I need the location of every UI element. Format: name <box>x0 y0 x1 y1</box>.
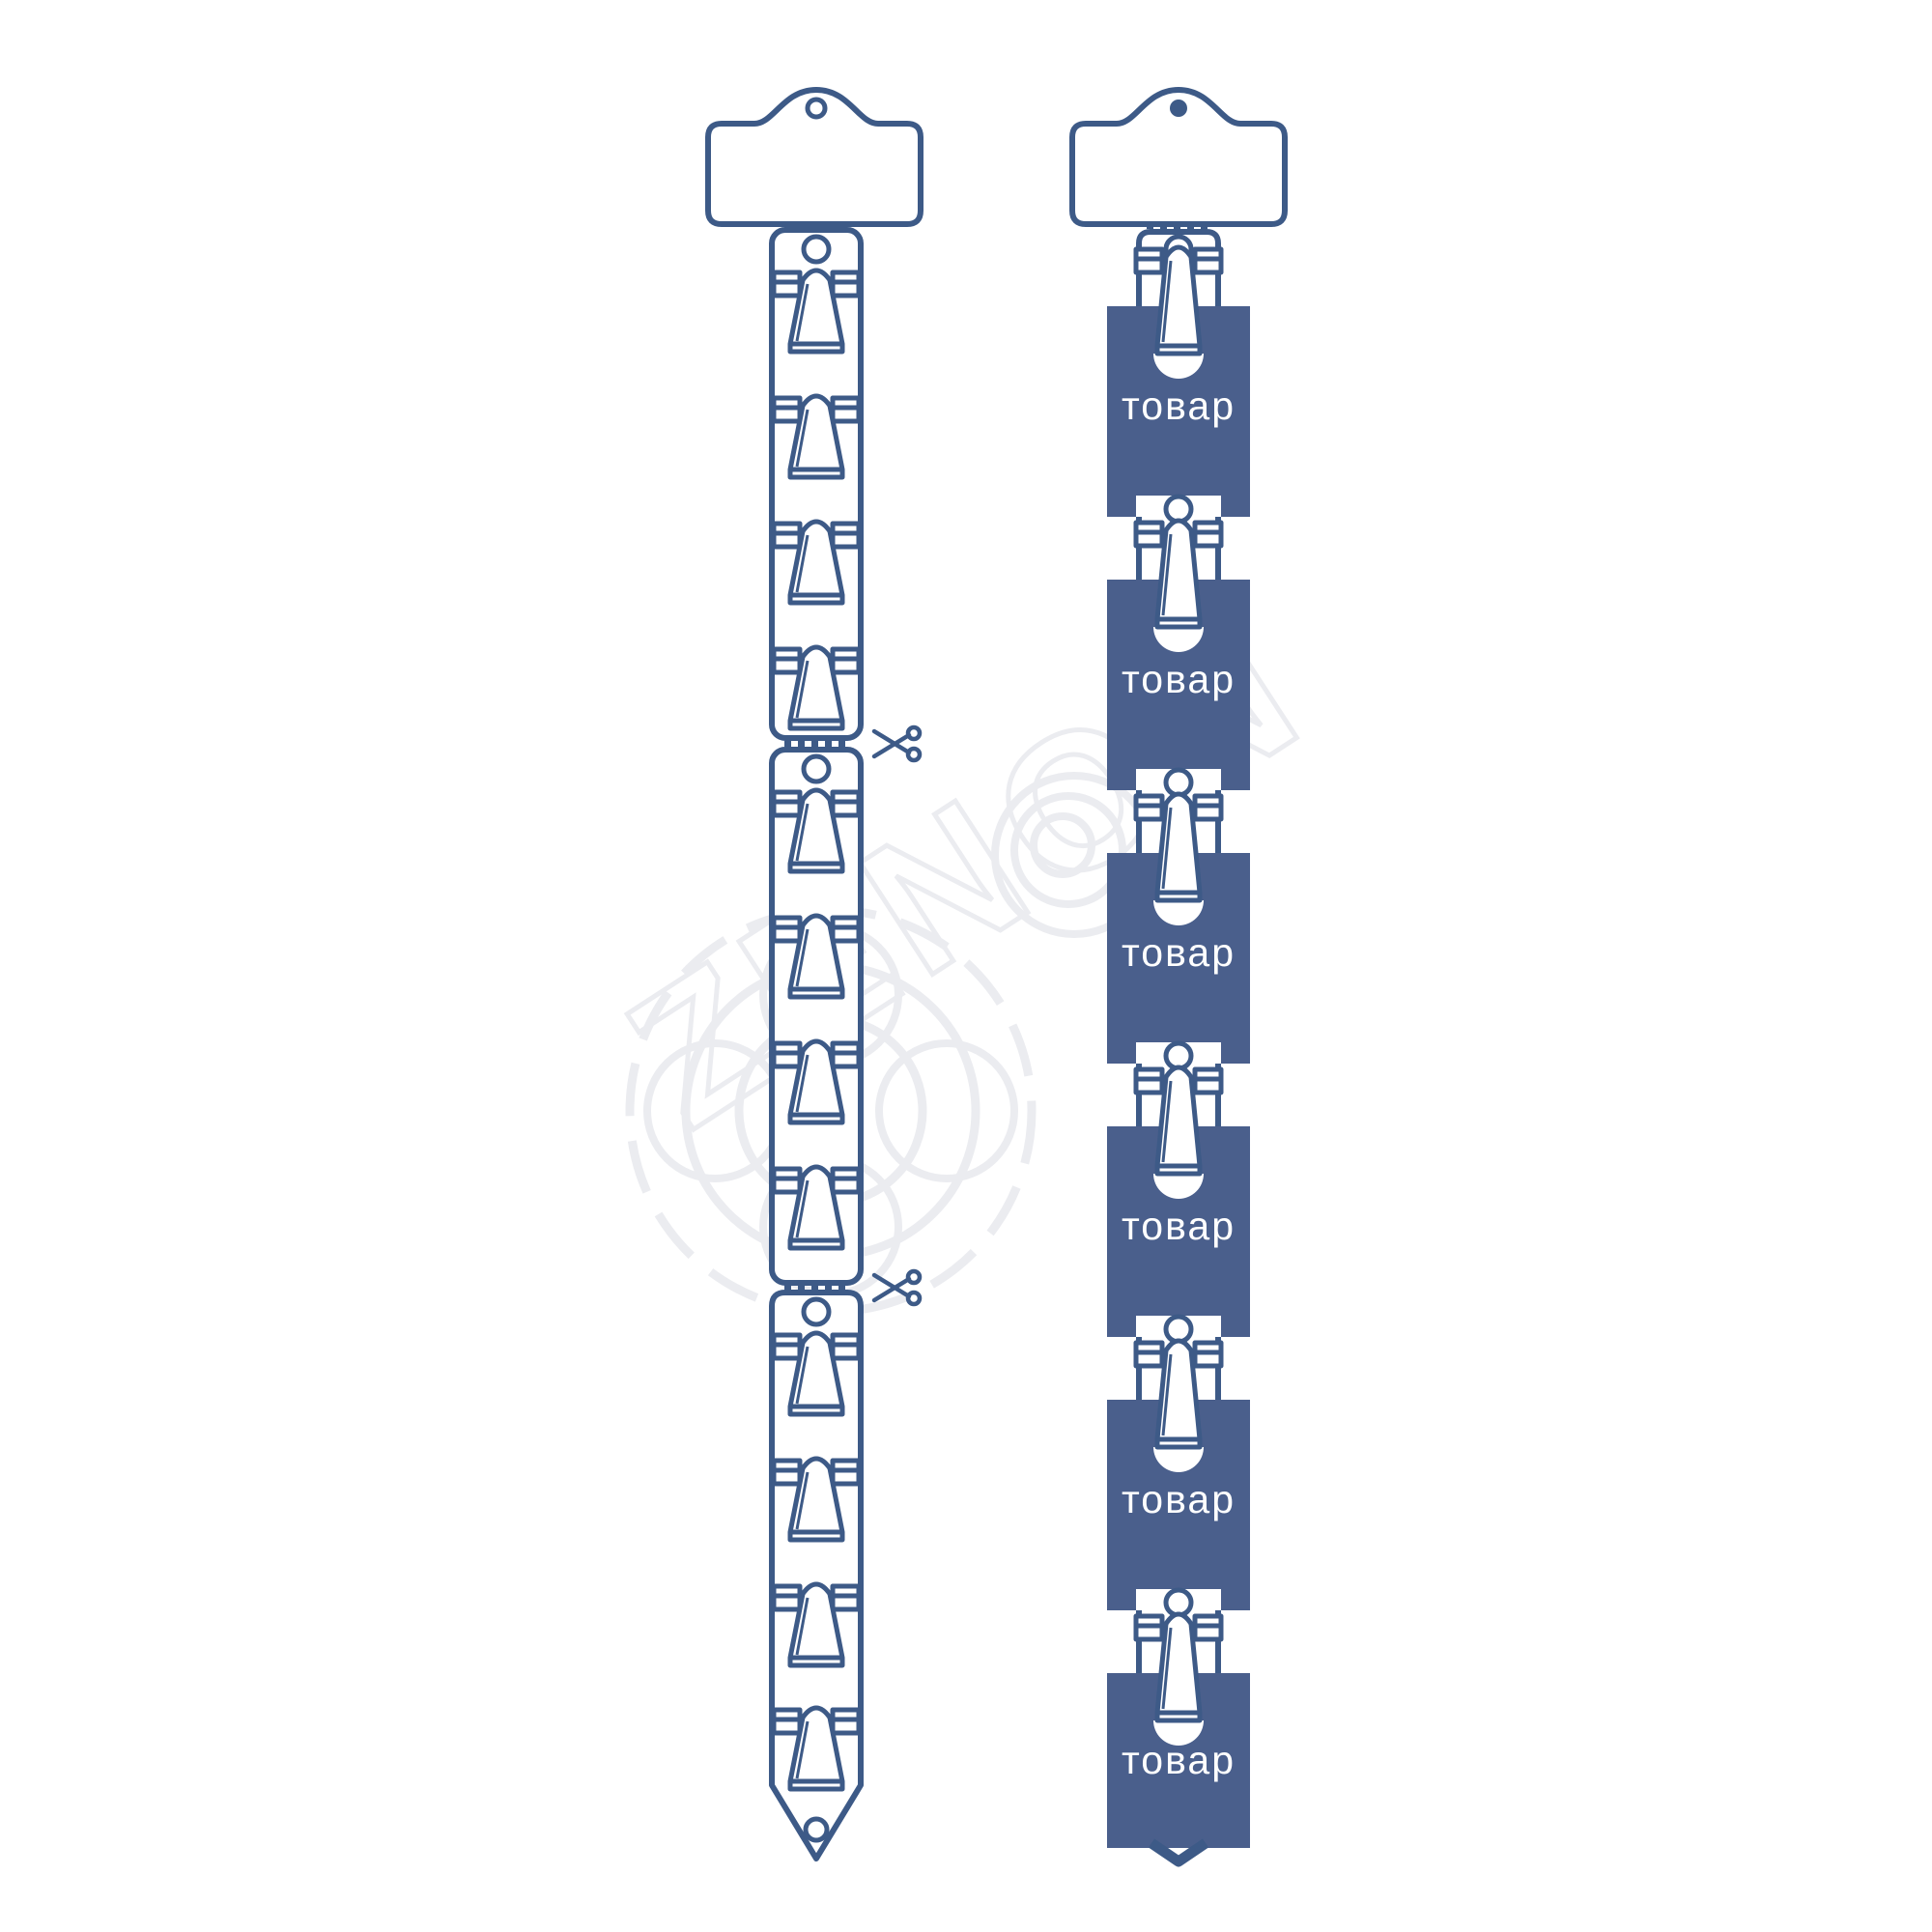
segment-hang-hole-icon <box>1166 1590 1191 1615</box>
hang-hole-icon <box>808 99 825 117</box>
product-label: товар <box>1122 1204 1236 1248</box>
segment-hang-hole-icon <box>804 237 829 262</box>
product-label: товар <box>1122 930 1236 975</box>
segment-hang-hole-icon <box>804 1299 829 1324</box>
segment-hang-hole-icon <box>1166 1043 1191 1068</box>
product-label: товар <box>1122 1477 1236 1521</box>
segment-hang-hole-icon <box>1166 770 1191 795</box>
scissors-icon <box>874 727 920 760</box>
segment-hang-hole-icon <box>804 756 829 781</box>
right-strip: товар товар товар товар товар товар <box>1072 90 1285 1861</box>
clip-strip-illustration: ZENON <box>0 0 1932 1932</box>
segment-hang-hole-icon <box>1166 1317 1191 1342</box>
product-label: товар <box>1122 657 1236 701</box>
product-label: товар <box>1122 1738 1236 1782</box>
bottom-hang-hole-icon <box>806 1819 827 1840</box>
hang-hole-filled-icon <box>1170 99 1187 117</box>
watermark-petal-icon <box>879 1043 1014 1179</box>
segment-hang-hole-icon <box>1166 497 1191 522</box>
product-label: товар <box>1122 384 1236 428</box>
